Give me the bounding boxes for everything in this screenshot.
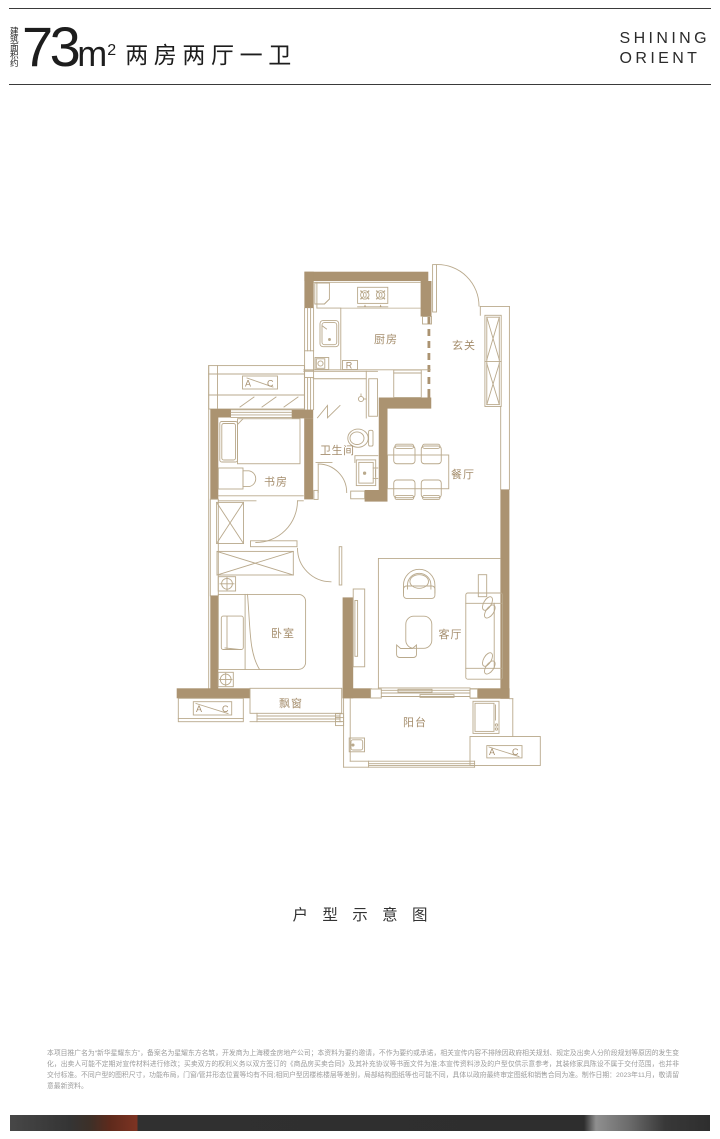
svg-text:厨房: 厨房 bbox=[374, 333, 398, 346]
svg-text:C: C bbox=[512, 747, 519, 757]
svg-text:客厅: 客厅 bbox=[439, 627, 463, 641]
svg-text:餐厅: 餐厅 bbox=[451, 467, 475, 481]
svg-text:A: A bbox=[245, 379, 251, 389]
svg-text:卧室: 卧室 bbox=[271, 626, 295, 640]
svg-text:卫生间: 卫生间 bbox=[320, 443, 355, 457]
svg-text:C: C bbox=[222, 704, 229, 714]
svg-text:C: C bbox=[267, 379, 274, 389]
svg-text:玄关: 玄关 bbox=[452, 338, 476, 352]
svg-text:A: A bbox=[489, 747, 495, 757]
svg-text:书房: 书房 bbox=[264, 476, 288, 489]
svg-text:A: A bbox=[196, 704, 202, 714]
svg-text:飘窗: 飘窗 bbox=[279, 696, 303, 710]
svg-text:R: R bbox=[346, 361, 353, 371]
svg-text:阳台: 阳台 bbox=[403, 715, 427, 729]
